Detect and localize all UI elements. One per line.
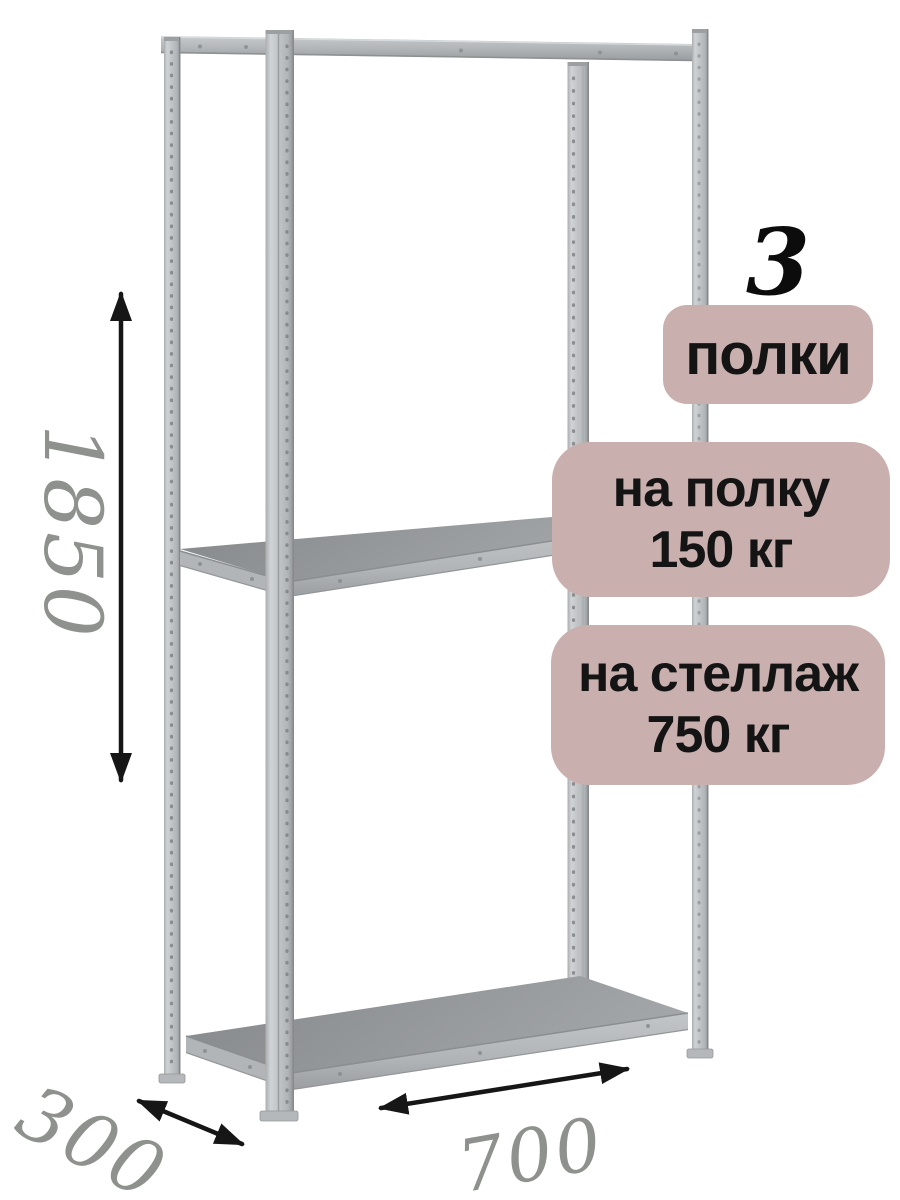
- shelf-count-badge-label: полки: [685, 321, 851, 388]
- rack-post-front-left: [266, 30, 295, 1120]
- rack-post-back-left: [164, 37, 181, 1082]
- shelf-count-value: 3: [734, 216, 822, 308]
- shelf-count-badge: полки: [663, 305, 873, 404]
- shelf-load-line1: на полку: [613, 459, 830, 520]
- product-image-metal-rack: 1850 300 700 3 полки на полку 150 кг на …: [0, 0, 900, 1200]
- rack-load-badge: на стеллаж 750 кг: [551, 625, 885, 785]
- shelf-load-badge: на полку 150 кг: [552, 442, 890, 597]
- height-dimension-label: 1850: [26, 317, 118, 747]
- rack-load-line1: на стеллаж: [578, 644, 858, 705]
- rack-load-line2: 750 кг: [647, 705, 790, 766]
- rack-illustration: [0, 0, 900, 1200]
- shelf-load-line2: 150 кг: [650, 520, 793, 581]
- rack-top-beam: [161, 36, 693, 61]
